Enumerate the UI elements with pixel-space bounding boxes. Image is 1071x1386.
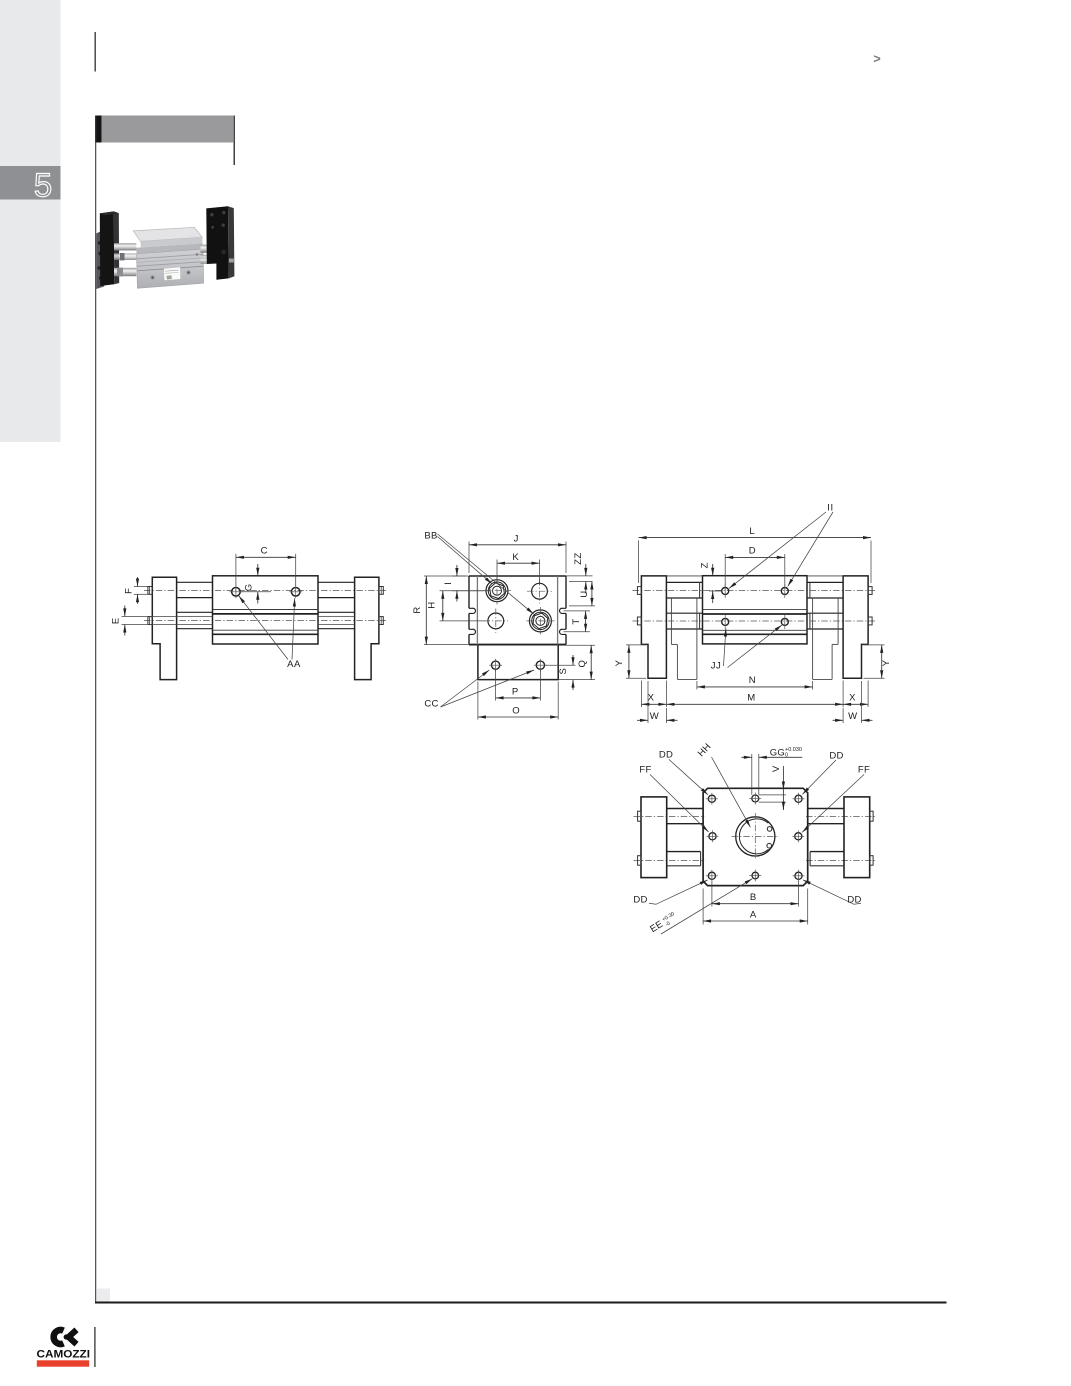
- svg-text:FF: FF: [639, 765, 651, 776]
- svg-text:W: W: [650, 711, 659, 722]
- svg-text:G: G: [243, 584, 254, 591]
- svg-text:II: II: [827, 503, 834, 514]
- svg-text:X: X: [648, 692, 655, 703]
- svg-text:M: M: [747, 692, 755, 703]
- svg-text:O: O: [512, 705, 519, 716]
- svg-text:CAMOZZI: CAMOZZI: [37, 1349, 91, 1361]
- svg-text:H: H: [427, 602, 438, 609]
- svg-text:BB: BB: [424, 531, 437, 542]
- svg-text:>: >: [873, 52, 880, 66]
- svg-text:S: S: [558, 668, 569, 674]
- svg-text:GG: GG: [770, 747, 785, 758]
- svg-text:K: K: [512, 552, 519, 563]
- svg-text:V: V: [771, 765, 782, 772]
- svg-text:CC: CC: [424, 699, 438, 710]
- svg-text:X: X: [849, 692, 856, 703]
- svg-text:Y: Y: [881, 659, 892, 666]
- svg-text:Q: Q: [577, 660, 588, 667]
- svg-text:E: E: [110, 618, 121, 624]
- svg-text:Y: Y: [614, 659, 625, 666]
- svg-text:DD: DD: [829, 751, 843, 762]
- svg-text:W: W: [848, 711, 857, 722]
- svg-text:N: N: [749, 675, 756, 686]
- svg-text:R: R: [412, 607, 423, 614]
- svg-text:FF: FF: [858, 765, 870, 776]
- svg-text:I: I: [443, 582, 454, 585]
- svg-text:AA: AA: [287, 659, 301, 670]
- svg-text:0: 0: [785, 753, 788, 759]
- svg-text:HH: HH: [696, 741, 714, 759]
- svg-text:B: B: [750, 892, 756, 903]
- svg-text:J: J: [514, 533, 519, 544]
- svg-text:C: C: [261, 545, 268, 556]
- svg-text:P: P: [512, 686, 518, 697]
- svg-text:F: F: [123, 588, 134, 594]
- svg-text:U: U: [579, 591, 590, 598]
- svg-text:D: D: [749, 546, 756, 557]
- svg-text:DD: DD: [847, 895, 861, 906]
- svg-text:L: L: [749, 526, 754, 537]
- svg-text:ZZ: ZZ: [573, 552, 584, 564]
- svg-text:DD: DD: [633, 895, 647, 906]
- svg-text:-0: -0: [664, 921, 671, 929]
- svg-text:T: T: [571, 619, 582, 625]
- svg-text:DD: DD: [659, 750, 673, 761]
- svg-text:Z: Z: [700, 562, 711, 568]
- svg-text:A: A: [750, 910, 757, 921]
- svg-text:5: 5: [34, 167, 52, 204]
- svg-text:JJ: JJ: [711, 661, 722, 672]
